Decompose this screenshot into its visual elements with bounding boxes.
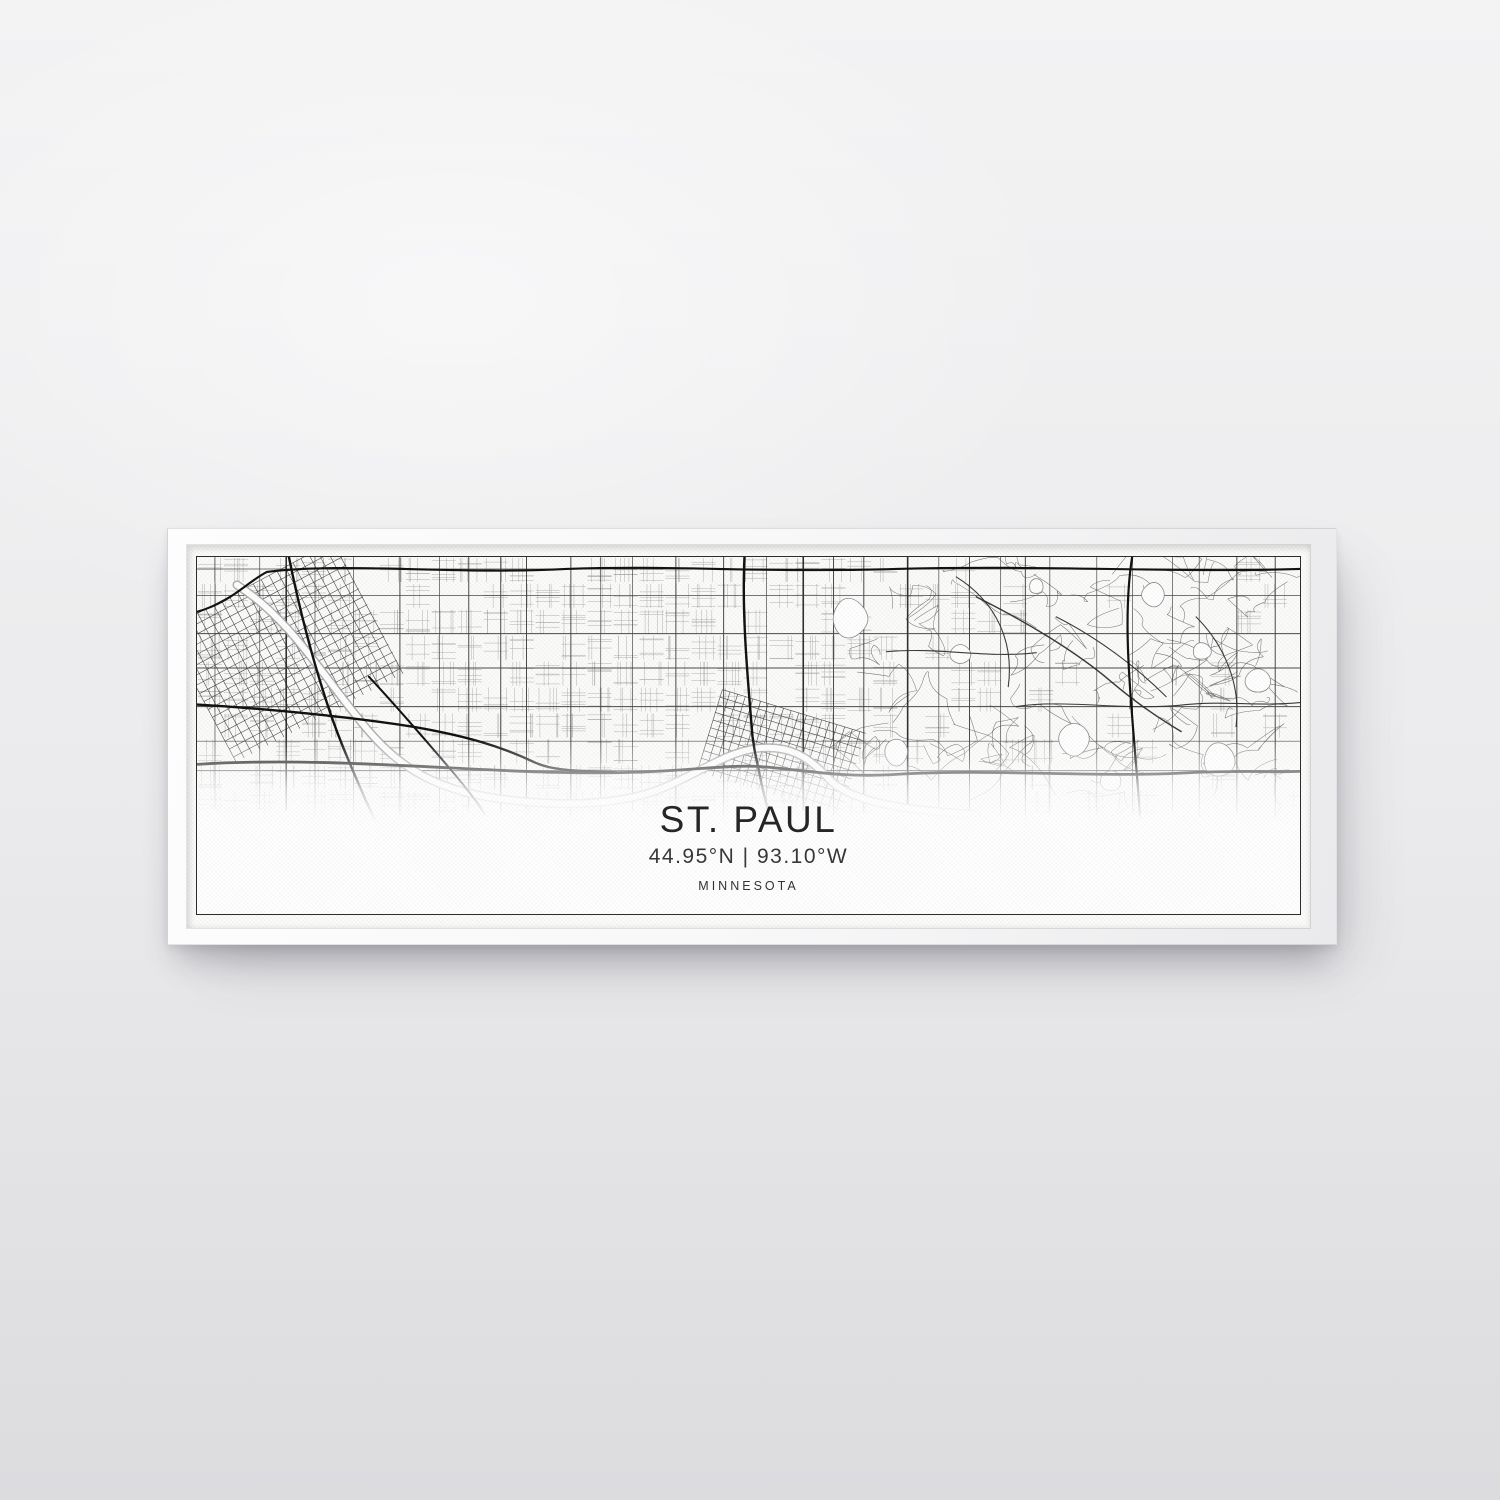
coordinates-label: 44.95°N | 93.10°W [197,844,1300,870]
picture-frame: ST. PAUL 44.95°N | 93.10°W MINNESOTA [167,528,1337,945]
state-label: MINNESOTA [197,879,1300,894]
city-title: ST. PAUL [197,800,1300,840]
title-block: ST. PAUL 44.95°N | 93.10°W MINNESOTA [197,800,1300,894]
canvas-print: ST. PAUL 44.95°N | 93.10°W MINNESOTA [187,545,1310,928]
design-border: ST. PAUL 44.95°N | 93.10°W MINNESOTA [196,556,1301,915]
